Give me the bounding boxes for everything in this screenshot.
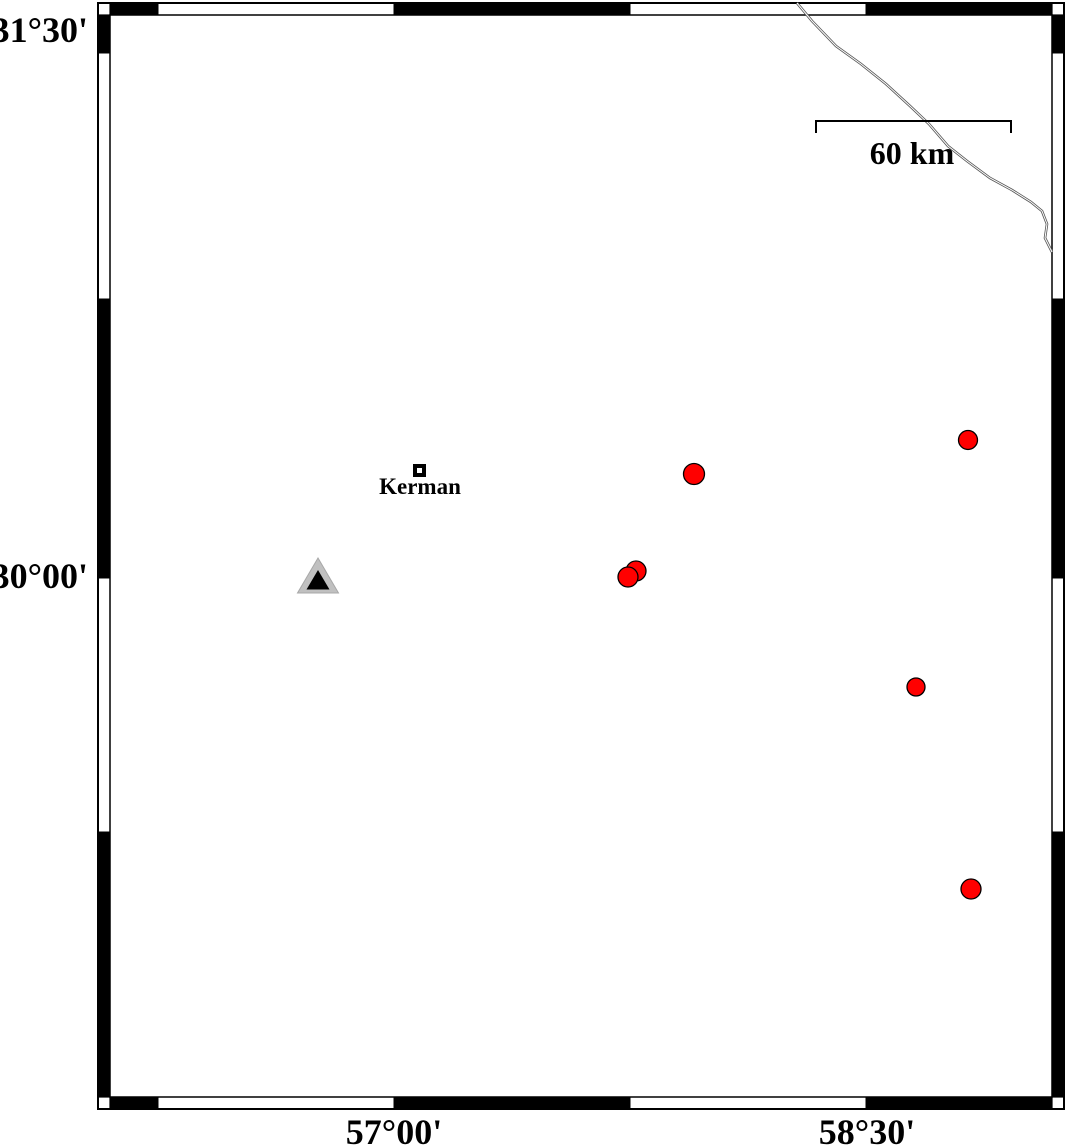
earthquake-marker (959, 431, 978, 450)
frame-band-segment (394, 3, 630, 15)
frame-band-segment (158, 3, 394, 15)
city-label: Kerman (379, 474, 461, 499)
frame-band-segment (394, 1097, 630, 1109)
earthquake-marker (684, 464, 705, 485)
axis-annotations: 31°30' 30°00' 57°00' 58°30' (0, 10, 915, 1146)
station-triangle-marker (298, 558, 339, 593)
frame-corner-square (98, 3, 110, 15)
earthquake-marker (961, 879, 981, 899)
earthquake-marker (907, 678, 925, 696)
frame-band-segment (158, 1097, 394, 1109)
map-figure: 60 km Kerman 31°30' 30°00' 57°00' 58°30' (0, 0, 1066, 1146)
lon-label-right: 58°30' (819, 1112, 915, 1146)
frame-band-segment (1052, 299, 1064, 578)
frame-band-segment (630, 1097, 866, 1109)
scale-bar-label: 60 km (870, 135, 955, 171)
frame-band-segment (866, 3, 1052, 15)
earthquake-marker (618, 567, 638, 587)
frame-band-segment (866, 1097, 1052, 1109)
frame-band-segment (1052, 53, 1064, 299)
frame-band-segment (98, 15, 110, 53)
frame-inner-line (110, 15, 1052, 1097)
road-inner-stroke (797, 3, 1052, 252)
city-kerman: Kerman (379, 466, 461, 499)
scale-bar: 60 km (816, 121, 1011, 171)
frame-band-segment (110, 1097, 158, 1109)
frame-band-segment (1052, 578, 1064, 832)
lon-label-left: 57°00' (346, 1112, 442, 1146)
lat-label-bottom: 30°00' (0, 556, 88, 596)
map-canvas: 60 km Kerman 31°30' 30°00' 57°00' 58°30' (0, 0, 1066, 1146)
frame-band-segment (98, 299, 110, 578)
frame-band-segment (98, 832, 110, 1097)
lat-label-top: 31°30' (0, 10, 88, 50)
earthquake-markers (618, 431, 981, 900)
frame-band-segment (98, 578, 110, 832)
frame-band-segment (1052, 15, 1064, 53)
frame-corner-square (1052, 3, 1064, 15)
frame-band-segment (98, 53, 110, 299)
frame-corner-square (1052, 1097, 1064, 1109)
frame-corner-square (98, 1097, 110, 1109)
scale-bar-bracket (816, 121, 1011, 133)
frame-band-segment (630, 3, 866, 15)
road-line (797, 3, 1052, 252)
frame-band-segment (1052, 832, 1064, 1097)
road-outer-stroke (797, 3, 1052, 252)
frame-band-segment (110, 3, 158, 15)
